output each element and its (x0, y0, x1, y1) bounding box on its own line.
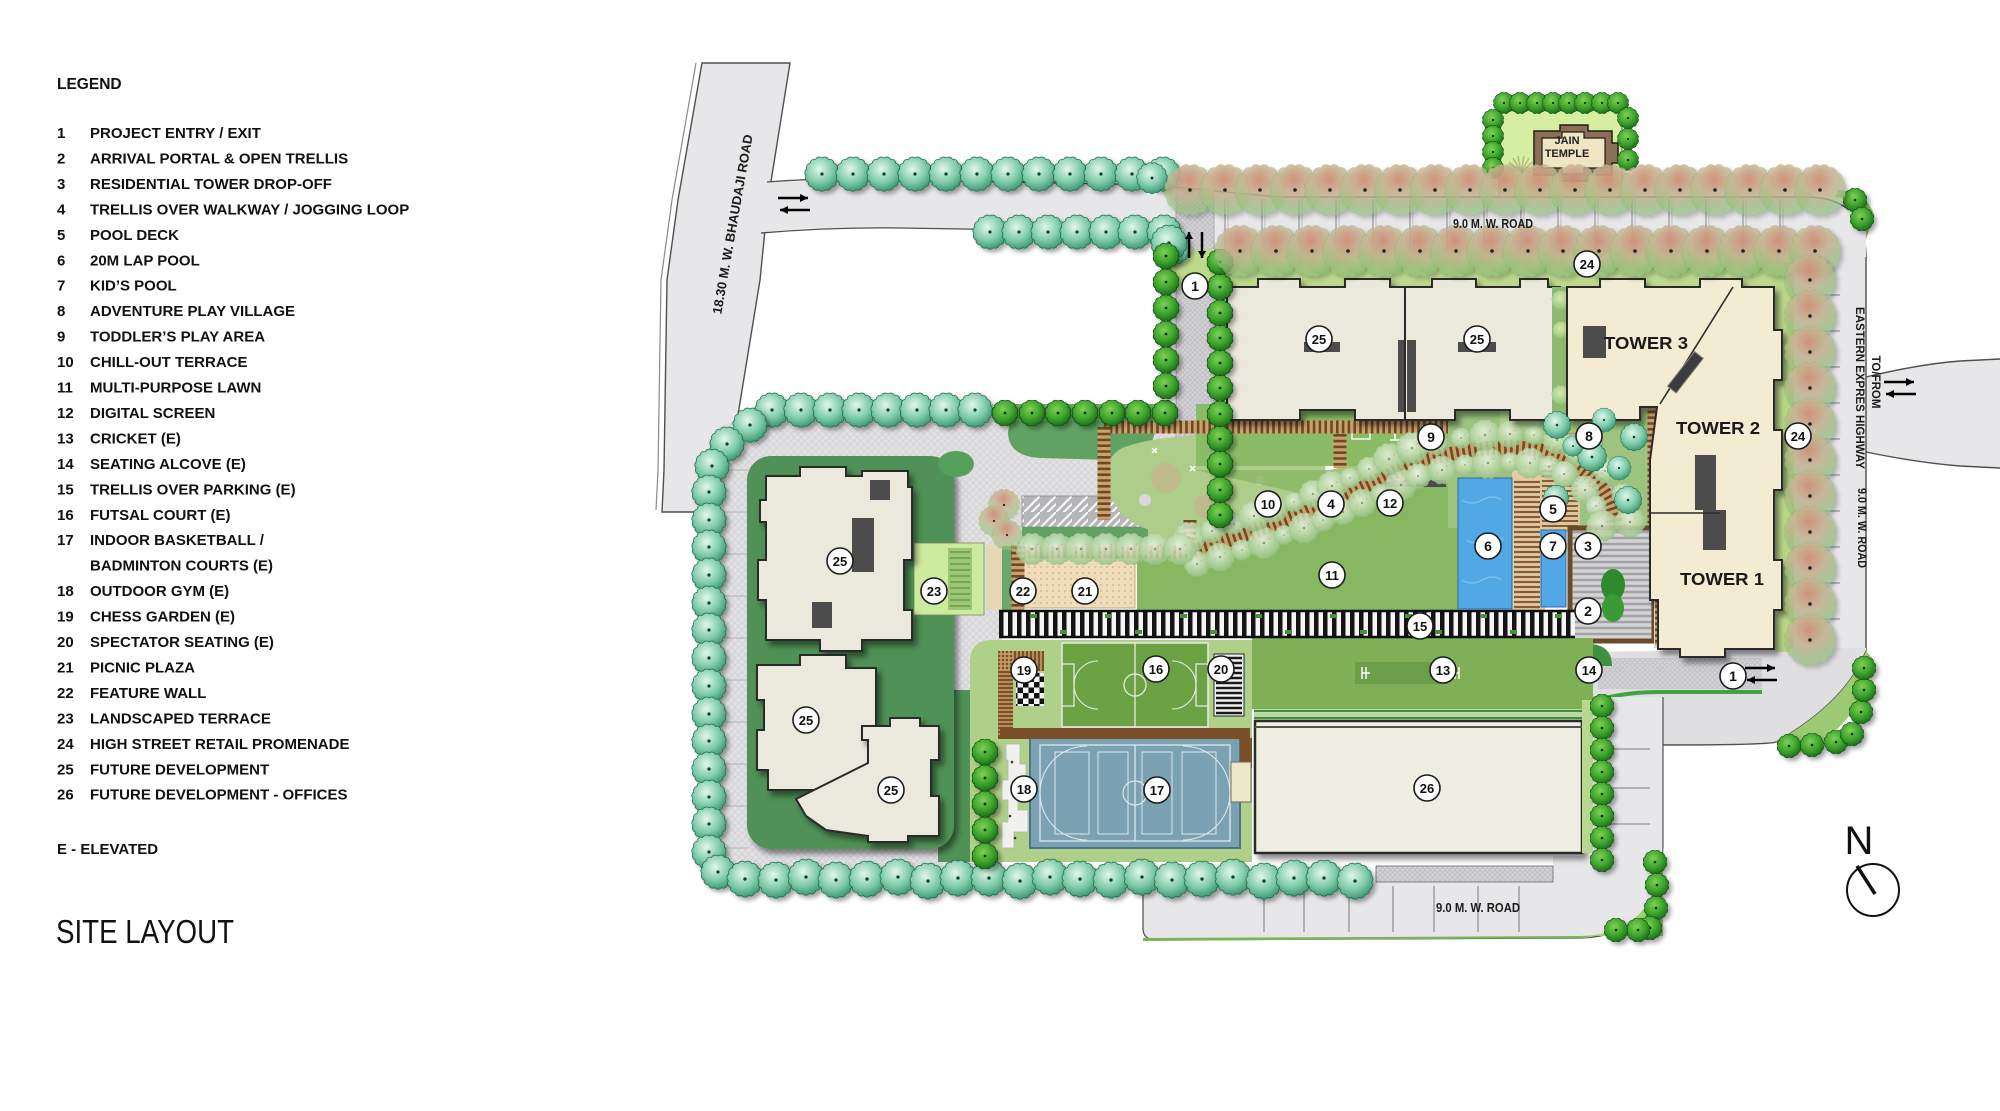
svg-text:DIGITAL SCREEN: DIGITAL SCREEN (90, 405, 215, 422)
svg-text:9.0 M. W. ROAD: 9.0 M. W. ROAD (1453, 217, 1533, 231)
svg-text:26: 26 (1420, 781, 1434, 796)
svg-text:TOWER 3: TOWER 3 (1604, 333, 1688, 353)
svg-text:10: 10 (1261, 497, 1275, 512)
svg-text:PICNIC PLAZA: PICNIC PLAZA (90, 659, 195, 676)
svg-text:6: 6 (1484, 538, 1492, 554)
svg-text:TODDLER’S PLAY AREA: TODDLER’S PLAY AREA (90, 329, 265, 346)
svg-text:HIGH STREET RETAIL PROMENADE: HIGH STREET RETAIL PROMENADE (90, 736, 349, 753)
svg-text:17: 17 (1150, 783, 1164, 798)
svg-text:1: 1 (1191, 278, 1199, 294)
svg-text:9.0 M. W. ROAD: 9.0 M. W. ROAD (1855, 488, 1869, 568)
svg-text:FEATURE WALL: FEATURE WALL (90, 685, 206, 702)
svg-text:25: 25 (833, 554, 847, 569)
svg-text:24: 24 (1580, 257, 1595, 272)
svg-text:FUTSAL COURT (E): FUTSAL COURT (E) (90, 507, 231, 524)
svg-text:INDOOR BASKETBALL /: INDOOR BASKETBALL / (90, 532, 265, 549)
svg-text:9.0 M. W. ROAD: 9.0 M. W. ROAD (1436, 901, 1520, 915)
svg-text:8: 8 (57, 303, 65, 320)
svg-text:18: 18 (1017, 782, 1031, 797)
svg-text:24: 24 (57, 736, 74, 753)
svg-text:SPECTATOR SEATING (E): SPECTATOR SEATING (E) (90, 634, 274, 651)
svg-text:LEGEND: LEGEND (57, 76, 122, 93)
svg-text:N: N (1845, 819, 1874, 863)
svg-text:11: 11 (1325, 568, 1339, 583)
svg-text:10: 10 (57, 354, 74, 371)
svg-text:TO/FROM: TO/FROM (1869, 356, 1881, 409)
svg-text:13: 13 (1436, 663, 1450, 678)
svg-text:20: 20 (1214, 662, 1228, 677)
svg-text:20: 20 (57, 634, 74, 651)
svg-text:15: 15 (1413, 619, 1427, 634)
svg-text:26: 26 (57, 787, 74, 804)
svg-text:15: 15 (57, 481, 74, 498)
svg-text:CRICKET (E): CRICKET (E) (90, 430, 181, 447)
svg-text:22: 22 (1016, 584, 1030, 599)
svg-text:19: 19 (1017, 663, 1031, 678)
svg-text:TEMPLE: TEMPLE (1545, 148, 1590, 160)
svg-text:16: 16 (57, 507, 74, 524)
svg-text:25: 25 (884, 783, 898, 798)
svg-text:CHILL-OUT TERRACE: CHILL-OUT TERRACE (90, 354, 248, 371)
svg-text:23: 23 (927, 584, 941, 599)
svg-text:SITE LAYOUT: SITE LAYOUT (56, 913, 234, 950)
svg-text:E - ELEVATED: E - ELEVATED (57, 841, 158, 858)
svg-text:7: 7 (57, 278, 65, 295)
svg-text:TOWER 2: TOWER 2 (1676, 418, 1760, 438)
svg-text:9: 9 (1427, 429, 1435, 445)
svg-text:JAIN: JAIN (1554, 135, 1579, 147)
svg-text:MULTI-PURPOSE LAWN: MULTI-PURPOSE LAWN (90, 380, 261, 397)
svg-text:CHESS GARDEN (E): CHESS GARDEN (E) (90, 609, 235, 626)
svg-text:1: 1 (1729, 668, 1737, 684)
svg-text:LANDSCAPED TERRACE: LANDSCAPED TERRACE (90, 710, 271, 727)
svg-text:14: 14 (57, 456, 74, 473)
svg-text:22: 22 (57, 685, 74, 702)
svg-text:OUTDOOR GYM (E): OUTDOOR GYM (E) (90, 583, 229, 600)
svg-text:25: 25 (57, 761, 74, 778)
svg-text:25: 25 (799, 713, 813, 728)
svg-text:3: 3 (57, 176, 65, 193)
svg-text:TRELLIS OVER WALKWAY / JOGGING: TRELLIS OVER WALKWAY / JOGGING LOOP (90, 201, 409, 218)
svg-text:7: 7 (1549, 538, 1557, 554)
svg-text:12: 12 (57, 405, 74, 422)
svg-text:9: 9 (57, 329, 65, 346)
svg-text:19: 19 (57, 609, 74, 626)
svg-text:25: 25 (1470, 332, 1484, 347)
svg-text:POOL DECK: POOL DECK (90, 227, 179, 244)
svg-text:24: 24 (1791, 429, 1806, 444)
svg-text:EASTERN EXPRES HIGHWAY: EASTERN EXPRES HIGHWAY (1853, 307, 1865, 469)
svg-text:5: 5 (57, 227, 65, 244)
svg-text:4: 4 (57, 201, 66, 218)
svg-text:6: 6 (57, 252, 65, 269)
svg-text:KID’S POOL: KID’S POOL (90, 278, 177, 295)
svg-text:18: 18 (57, 583, 74, 600)
svg-text:ARRIVAL PORTAL & OPEN TRELLIS: ARRIVAL PORTAL & OPEN TRELLIS (90, 150, 348, 167)
svg-text:16: 16 (1149, 662, 1163, 677)
svg-text:SEATING ALCOVE (E): SEATING ALCOVE (E) (90, 456, 246, 473)
svg-text:11: 11 (57, 380, 73, 397)
svg-text:17: 17 (57, 532, 74, 549)
svg-text:5: 5 (1549, 501, 1557, 517)
svg-text:21: 21 (57, 659, 74, 676)
svg-text:RESIDENTIAL TOWER DROP-OFF: RESIDENTIAL TOWER DROP-OFF (90, 176, 332, 193)
svg-text:FUTURE DEVELOPMENT: FUTURE DEVELOPMENT (90, 761, 269, 778)
svg-text:20M LAP POOL: 20M LAP POOL (90, 252, 200, 269)
svg-text:TRELLIS OVER PARKING (E): TRELLIS OVER PARKING (E) (90, 481, 296, 498)
svg-text:23: 23 (57, 710, 74, 727)
svg-text:13: 13 (57, 430, 74, 447)
svg-text:21: 21 (1078, 584, 1092, 599)
svg-text:25: 25 (1312, 332, 1326, 347)
svg-text:BADMINTON COURTS (E): BADMINTON COURTS (E) (90, 558, 273, 575)
svg-text:2: 2 (57, 150, 65, 167)
svg-text:FUTURE DEVELOPMENT - OFFICES: FUTURE DEVELOPMENT - OFFICES (90, 787, 348, 804)
svg-text:12: 12 (1383, 496, 1397, 511)
svg-text:1: 1 (57, 125, 65, 142)
svg-text:8: 8 (1585, 428, 1593, 444)
svg-text:ADVENTURE PLAY VILLAGE: ADVENTURE PLAY VILLAGE (90, 303, 295, 320)
svg-text:2: 2 (1584, 603, 1592, 619)
svg-text:4: 4 (1327, 496, 1335, 512)
svg-text:TOWER 1: TOWER 1 (1680, 569, 1764, 589)
svg-text:3: 3 (1584, 538, 1592, 554)
svg-text:14: 14 (1582, 663, 1597, 678)
svg-text:PROJECT ENTRY / EXIT: PROJECT ENTRY / EXIT (90, 125, 261, 142)
